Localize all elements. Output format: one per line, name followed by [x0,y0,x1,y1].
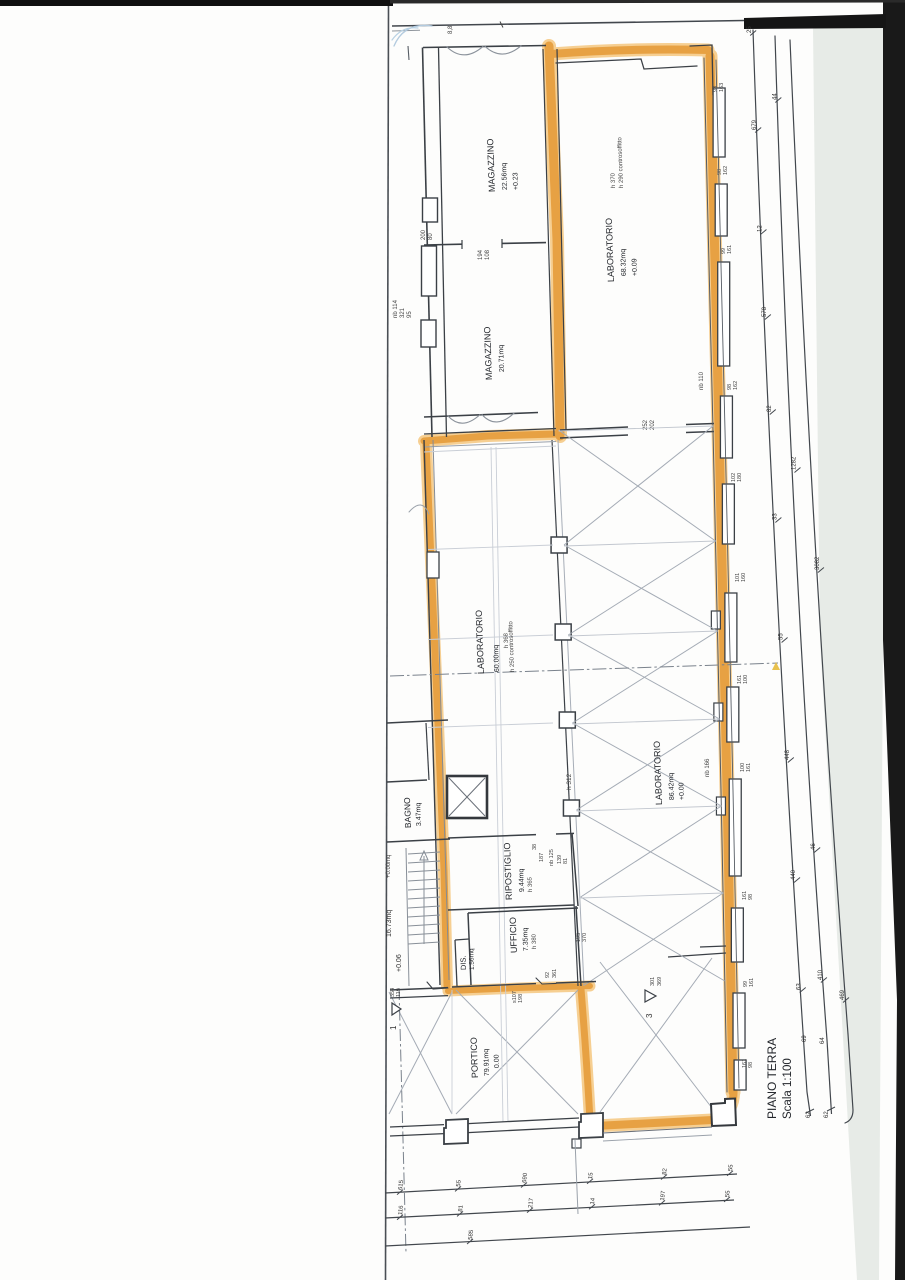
svg-text:+0.06: +0.06 [396,954,403,972]
svg-text:99: 99 [721,248,727,254]
svg-text:95: 95 [407,311,413,318]
svg-text:160: 160 [741,573,747,582]
svg-text:187: 187 [539,853,545,862]
svg-text:161: 161 [749,978,755,987]
svg-text:55: 55 [779,633,785,640]
svg-text:370: 370 [582,933,588,942]
svg-text:BAGNO: BAGNO [402,797,413,828]
svg-text:119: 119 [396,988,402,997]
svg-text:0.00: 0.00 [494,1054,501,1068]
svg-text:3.47mq: 3.47mq [415,802,423,826]
svg-text:63: 63 [797,983,803,990]
svg-text:8,8: 8,8 [448,25,454,34]
svg-text:25: 25 [747,26,753,33]
svg-text:1.56mq: 1.56mq [468,948,476,970]
svg-text:98: 98 [713,86,719,92]
svg-text:469: 469 [840,989,846,1000]
svg-text:690: 690 [522,1172,529,1183]
svg-text:3: 3 [645,1013,654,1018]
svg-text:369: 369 [657,977,663,986]
svg-text:Scala 1:100: Scala 1:100 [782,1058,794,1119]
svg-text:38: 38 [532,844,538,850]
svg-text:62: 62 [806,1111,812,1118]
svg-text:361: 361 [552,969,558,978]
svg-text:64: 64 [820,1037,826,1044]
svg-text:nb 114: nb 114 [393,299,399,318]
svg-text:108: 108 [485,249,491,260]
svg-text:200: 200 [421,229,427,240]
svg-text:410: 410 [818,969,824,980]
svg-text:162: 162 [723,166,729,175]
svg-text:615: 615 [398,1179,405,1190]
svg-text:99: 99 [743,981,749,987]
svg-text:+0.09: +0.09 [631,258,639,276]
svg-text:100: 100 [740,763,746,772]
svg-text:101: 101 [735,573,741,582]
svg-text:60.00mq: 60.00mq [493,645,501,673]
svg-text:1282: 1282 [791,456,797,470]
svg-text:7.35mq: 7.35mq [522,927,530,951]
svg-text:161: 161 [742,891,748,900]
svg-text:585: 585 [468,1229,475,1240]
svg-text:198: 198 [518,994,524,1003]
svg-text:163: 163 [719,83,725,92]
svg-text:55: 55 [728,1164,735,1172]
svg-text:98: 98 [717,169,723,175]
svg-text:UFFICIO: UFFICIO [508,917,519,953]
svg-text:301: 301 [650,977,656,986]
svg-text:197: 197 [660,1190,667,1201]
svg-text:98: 98 [748,1062,754,1068]
svg-text:81: 81 [458,1204,465,1212]
svg-text:nb 125: nb 125 [549,849,555,866]
svg-text:92: 92 [545,972,551,978]
svg-text:15: 15 [588,1172,595,1180]
svg-text:h 370: h 370 [610,172,617,188]
svg-text:578: 578 [762,306,768,317]
svg-text:h 380: h 380 [531,933,538,949]
svg-text:nb 110: nb 110 [699,371,705,390]
svg-text:55: 55 [725,1190,732,1198]
svg-text:+0.00mq: +0.00mq [386,854,392,878]
svg-text:12: 12 [757,225,763,232]
svg-text:81: 81 [563,858,569,864]
svg-text:DIS.: DIS. [458,955,468,970]
svg-text:69: 69 [802,1035,808,1042]
svg-text:62: 62 [824,1111,830,1118]
svg-text:22.56mq: 22.56mq [501,163,509,191]
svg-text:46: 46 [811,843,817,850]
svg-text:161: 161 [727,245,733,254]
svg-text:h 365: h 365 [527,876,534,892]
svg-text:98: 98 [727,384,733,390]
svg-text:68.32mq: 68.32mq [620,249,628,277]
svg-text:679: 679 [752,119,758,130]
svg-text:448: 448 [785,749,791,760]
svg-text:33: 33 [772,513,778,520]
svg-text:98: 98 [748,894,754,900]
svg-text:1: 1 [389,1025,398,1030]
svg-text:161: 161 [737,675,743,684]
svg-text:161: 161 [742,1059,748,1068]
svg-text:194: 194 [478,249,484,260]
svg-text:MAGAZZINO: MAGAZZINO [485,138,497,192]
svg-text:102: 102 [731,473,737,482]
svg-text:82: 82 [767,405,773,412]
svg-text:321: 321 [400,307,406,318]
svg-text:20.71mq: 20.71mq [498,345,506,373]
svg-text:161: 161 [746,763,752,772]
svg-text:14: 14 [590,1197,597,1205]
svg-text:PIANO TERRA: PIANO TERRA [765,1038,779,1119]
svg-text:354: 354 [390,988,396,997]
svg-text:h 312: h 312 [566,773,573,790]
svg-text:55: 55 [456,1179,463,1187]
svg-text:100: 100 [743,675,749,684]
svg-text:9.44mq: 9.44mq [518,868,526,892]
svg-text:16.73mq: 16.73mq [386,910,393,937]
svg-text:440: 440 [791,869,797,880]
svg-text:116: 116 [398,1205,405,1216]
svg-text:44: 44 [772,93,778,100]
svg-text:nb 166: nb 166 [705,758,711,777]
svg-text:3082: 3082 [815,556,821,570]
svg-text:180: 180 [737,473,743,482]
svg-text:82: 82 [662,1167,669,1175]
svg-text:217: 217 [528,1197,535,1208]
svg-text:162: 162 [733,381,739,390]
svg-text:79.91mq: 79.91mq [483,1049,491,1077]
svg-text:RIPOSTIGLIO: RIPOSTIGLIO [502,842,514,900]
svg-text:+0.00: +0.00 [678,782,686,800]
svg-text:86.42mq: 86.42mq [668,773,676,801]
svg-text:PORTICO: PORTICO [469,1037,480,1078]
svg-text:80: 80 [428,233,434,240]
svg-text:+0.23: +0.23 [512,172,520,190]
svg-text:MAGAZZINO: MAGAZZINO [482,326,494,380]
